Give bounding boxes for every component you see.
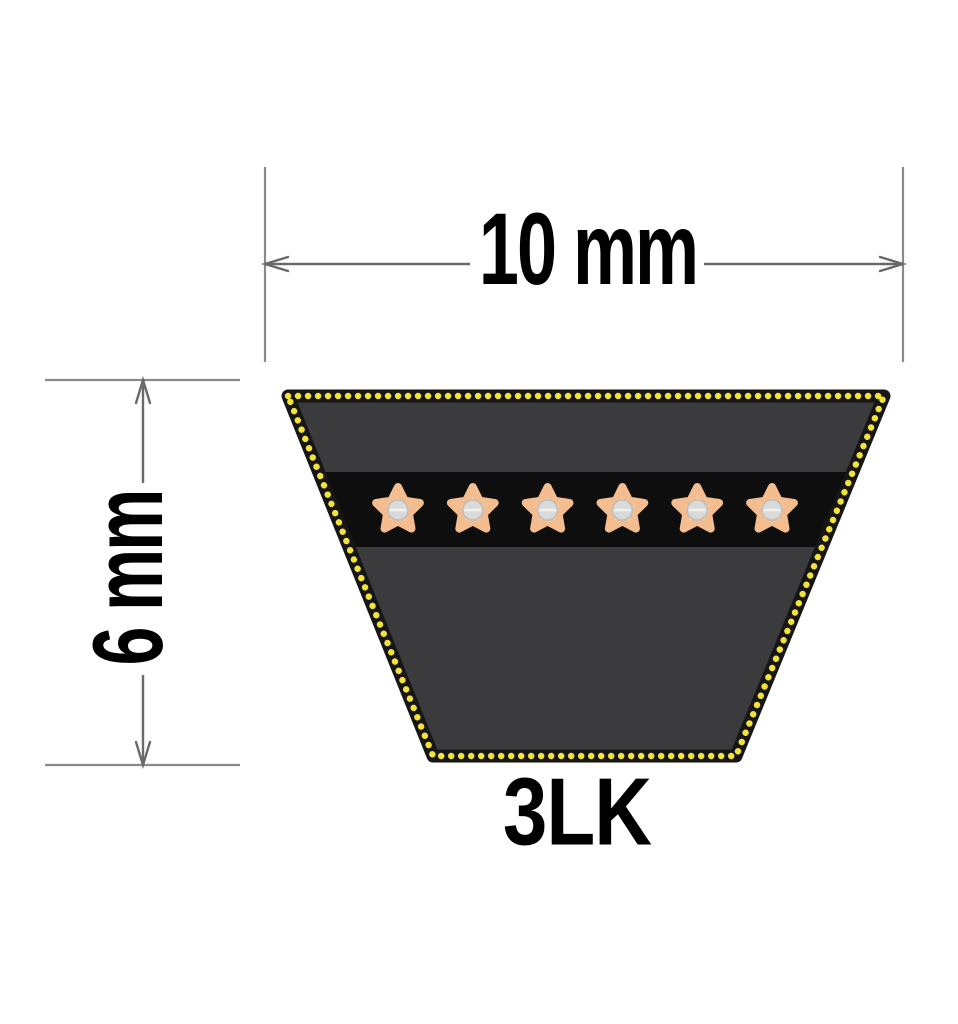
belt-cross-section-diagram: 10 mm 6 mm 3LK <box>0 0 958 1024</box>
belt-section <box>260 396 910 756</box>
belt-body <box>288 396 884 756</box>
height-dimension-label: 6 mm <box>78 491 177 666</box>
belt-type-label: 3LK <box>503 764 651 860</box>
width-dimension-label: 10 mm <box>479 199 697 301</box>
cord-band <box>260 472 910 547</box>
